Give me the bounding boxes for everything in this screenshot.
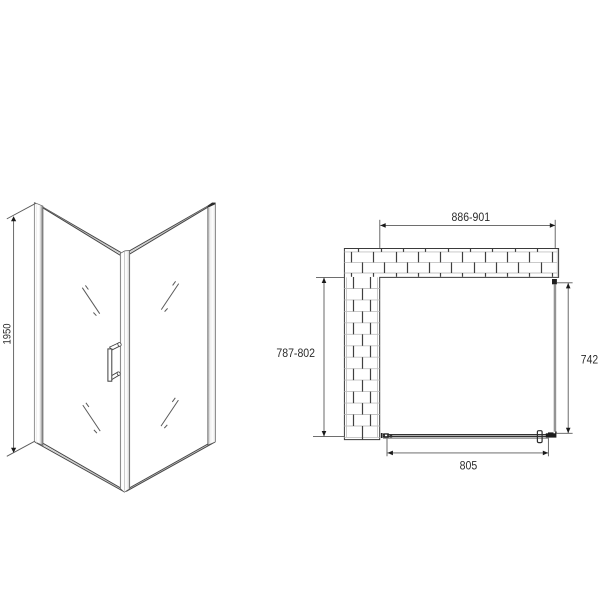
svg-text:805: 805	[460, 460, 478, 472]
svg-text:787-802: 787-802	[276, 348, 315, 360]
svg-text:742: 742	[581, 354, 598, 366]
svg-text:886-901: 886-901	[452, 212, 491, 224]
svg-text:1950: 1950	[2, 324, 14, 345]
